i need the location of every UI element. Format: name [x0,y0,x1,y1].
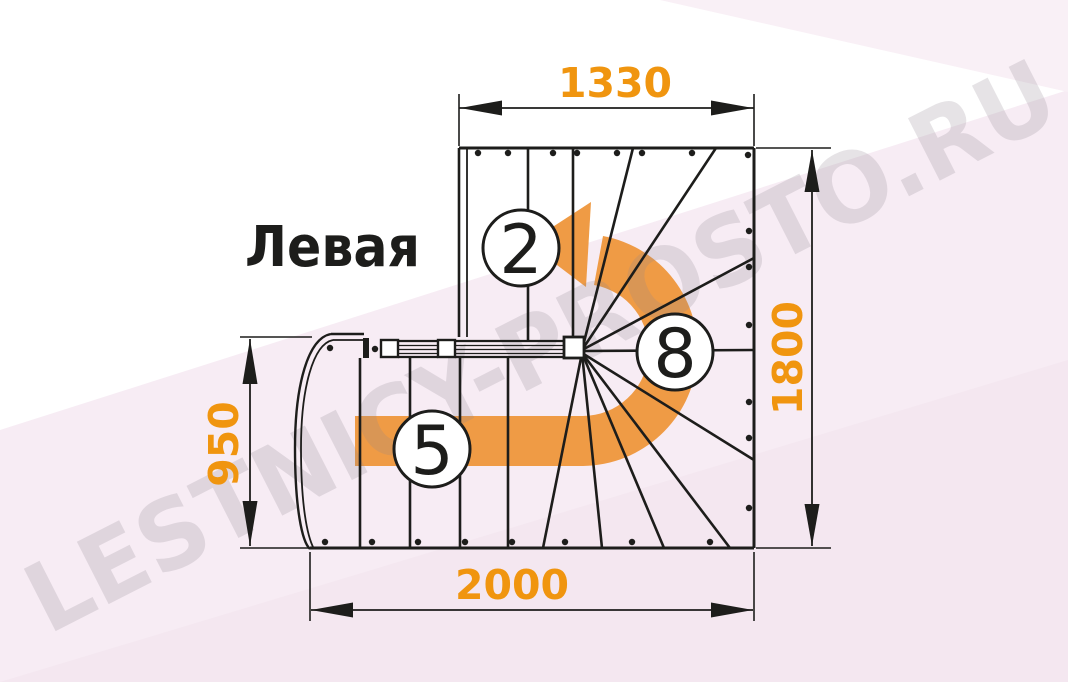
step-number-upper: 2 [499,211,542,290]
dimension-label-right: 1800 [764,301,812,415]
dimension-label-left: 950 [200,401,248,487]
staircase-plan-canvas: LESTNICY-PROSTO.RU [0,0,1068,682]
dimension-label-bottom: 2000 [455,561,569,609]
dimension-label-top: 1330 [558,59,672,107]
step-number-lower: 5 [410,412,453,491]
post-square [438,340,455,357]
step-number-winder: 8 [653,315,696,394]
beam-end-cap [363,338,369,358]
newel-post-square [564,337,584,358]
staircase-plan-svg: LESTNICY-PROSTO.RU [0,0,1068,682]
orientation-title: Левая [245,215,420,280]
post-square [381,340,398,357]
